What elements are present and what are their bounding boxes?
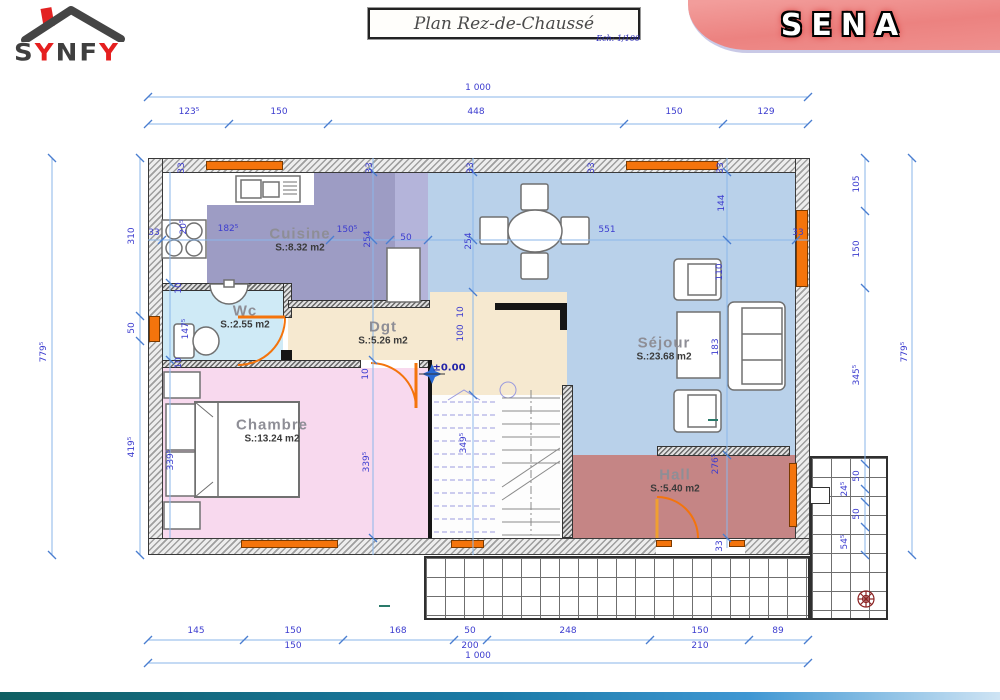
dimension-label: 144 xyxy=(717,194,727,211)
dimension-label: 50 xyxy=(464,626,475,636)
room-label: Séjour S.:23.68 m2 xyxy=(636,335,691,364)
dimension-label: 33 xyxy=(715,540,725,551)
dimension-label: 168 xyxy=(389,626,406,636)
dimension-label: 183 xyxy=(711,338,721,355)
room-area: S.:2.55 m2 xyxy=(220,320,269,332)
room-area: S.:8.32 m2 xyxy=(269,243,330,255)
nightstand-icon-2 xyxy=(164,502,200,529)
dimension-label: 20⁵ xyxy=(179,219,189,234)
room-area: S.:5.26 m2 xyxy=(358,336,407,348)
dimension-label: 54⁵ xyxy=(840,534,850,549)
room-name: Hall xyxy=(650,467,699,484)
dimension-label: 50 xyxy=(400,233,411,243)
bottom-color-bar xyxy=(0,692,1000,700)
dimension-label: 150 xyxy=(284,626,301,636)
dimension-label: 276⁵ xyxy=(711,454,721,475)
kitchen-island-icon xyxy=(387,248,420,302)
dimension-label: 150 xyxy=(284,641,301,651)
dimension-label: 33 xyxy=(792,228,803,238)
dimension-label: 210 xyxy=(691,641,708,651)
stairs-lower-flight xyxy=(502,390,560,535)
dimension-label: 200 xyxy=(461,641,478,651)
dimension-label: 24⁵ xyxy=(840,481,850,496)
dimension-label: 349⁵ xyxy=(459,433,469,454)
stairs-up-arrow xyxy=(448,390,480,400)
dimension-label: 50 xyxy=(852,508,862,519)
room-label: Dgt S.:5.26 m2 xyxy=(358,319,407,348)
dimension-label: 1 000 xyxy=(465,651,491,661)
dimension-label: 33 xyxy=(716,162,726,173)
dimension-label: 345⁵ xyxy=(852,365,862,386)
dimension-label: 779⁵ xyxy=(39,342,49,363)
dimension-label: 105 xyxy=(852,175,862,192)
stairs-start-circle xyxy=(500,382,516,398)
dimension-label: 150 xyxy=(665,107,682,117)
armchair-icon-1 xyxy=(674,259,721,300)
room-area: S.:5.40 m2 xyxy=(650,484,699,496)
room-name: Cuisine xyxy=(269,226,330,243)
dimension-label: 33 xyxy=(148,228,159,238)
dimension-label: 339⁵ xyxy=(362,452,372,473)
room-area: S.:13.24 m2 xyxy=(236,434,308,446)
sofa-icon xyxy=(728,302,785,390)
dimension-label: 448 xyxy=(467,107,484,117)
dimension-label: 123⁵ xyxy=(179,107,200,117)
dimension-label: 182⁵ xyxy=(218,224,239,234)
dimension-label: 150 xyxy=(852,240,862,257)
dimension-label: 100 xyxy=(456,324,466,341)
dimension-label: 33 xyxy=(466,162,476,173)
room-name: Dgt xyxy=(358,319,407,336)
dimension-label: 50 xyxy=(852,470,862,481)
room-name: Wc xyxy=(220,303,269,320)
dimension-label: 145 xyxy=(187,626,204,636)
floor-plan-page: SYNFY Plan Rez-de-Chaussé Ech: 1/100 SEN… xyxy=(0,0,1000,700)
dimension-label: 150 xyxy=(270,107,287,117)
level-marker: ±0.00 xyxy=(432,363,465,374)
dimension-label: 150⁵ xyxy=(337,225,358,235)
room-label: Hall S.:5.40 m2 xyxy=(650,467,699,496)
room-name: Chambre xyxy=(236,417,308,434)
room-area: S.:23.68 m2 xyxy=(636,352,691,364)
dimension-label: 10 xyxy=(174,357,184,368)
room-label: Wc S.:2.55 m2 xyxy=(220,303,269,332)
nightstand-icon-1 xyxy=(164,372,200,398)
plan-drawing-layer xyxy=(0,0,1000,700)
dimension-label: 147⁵ xyxy=(181,319,191,340)
room-label: Chambre S.:13.24 m2 xyxy=(236,417,308,446)
dimension-label: 254 xyxy=(363,230,373,247)
dimension-label: 419⁵ xyxy=(127,437,137,458)
dimension-label: 10 xyxy=(361,368,371,379)
kitchen-sink-icon xyxy=(236,176,300,202)
dimension-label: 33 xyxy=(365,162,375,173)
dining-table-icon xyxy=(480,184,589,279)
dimension-label: 33 xyxy=(587,162,597,173)
plant-icon xyxy=(858,591,874,607)
dimension-label: 33 xyxy=(177,162,187,173)
dimension-label: 50 xyxy=(127,322,137,333)
dimension-label: 10 xyxy=(174,282,184,293)
dimension-label: 310 xyxy=(127,227,137,244)
dimension-label: 254 xyxy=(464,232,474,249)
room-name: Séjour xyxy=(636,335,691,352)
armchair-icon-2 xyxy=(674,390,721,432)
dimension-label: 551 xyxy=(598,225,615,235)
dimension-label: 10 xyxy=(456,306,466,317)
dimension-label: 89 xyxy=(772,626,783,636)
dimension-label: 1 000 xyxy=(465,83,491,93)
wc-sink-icon xyxy=(210,280,248,304)
chambre-door xyxy=(371,363,416,408)
dimension-label: 110 xyxy=(715,263,725,280)
dimension-label: 248 xyxy=(559,626,576,636)
dimension-label: 779⁵ xyxy=(900,342,910,363)
dimension-label: 150 xyxy=(691,626,708,636)
dimension-label: 339⁵ xyxy=(166,450,176,471)
entrance-door xyxy=(657,497,698,538)
room-label: Cuisine S.:8.32 m2 xyxy=(269,226,330,255)
dimension-label: 129 xyxy=(757,107,774,117)
